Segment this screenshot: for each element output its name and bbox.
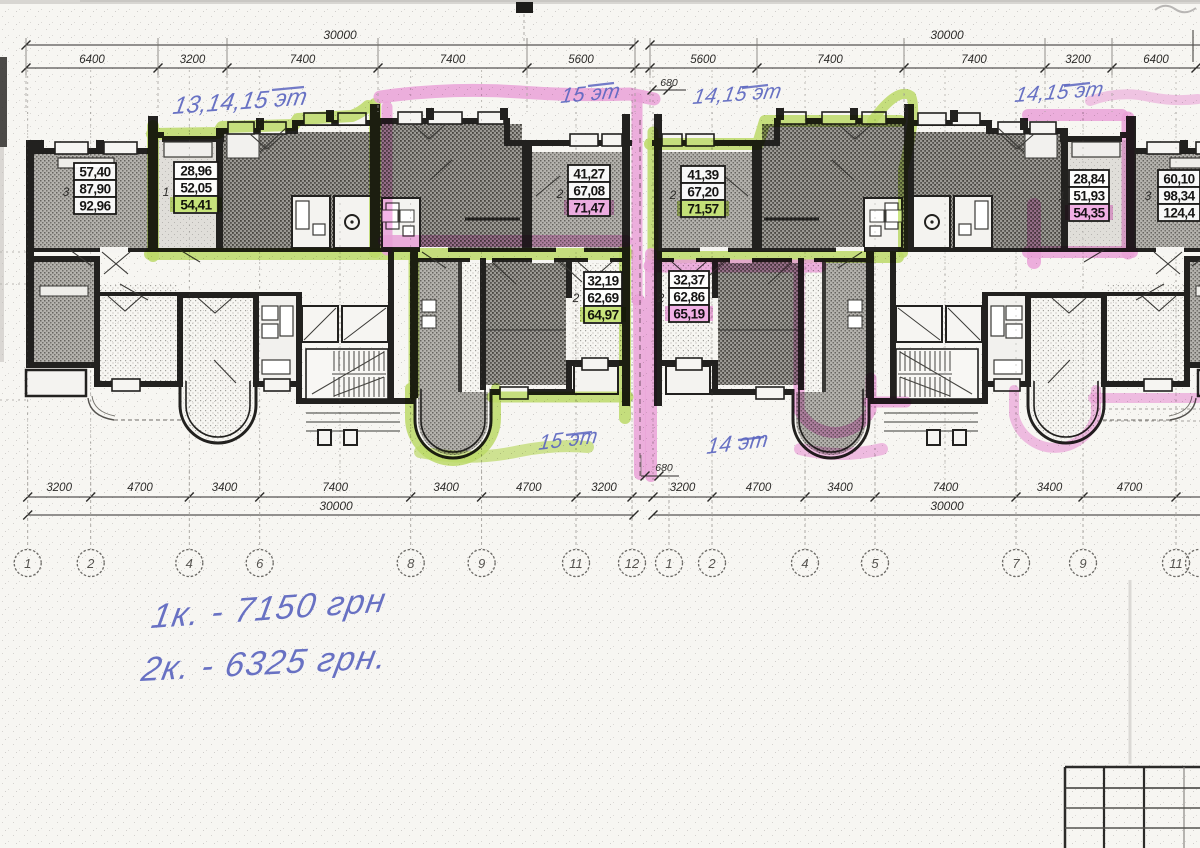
svg-text:98,34: 98,34	[1163, 189, 1195, 204]
svg-text:7400: 7400	[440, 54, 466, 66]
svg-text:87,90: 87,90	[79, 182, 110, 197]
svg-text:7400: 7400	[961, 54, 987, 66]
svg-text:32,19: 32,19	[587, 274, 618, 289]
svg-text:51,93: 51,93	[1073, 189, 1105, 204]
svg-text:6400: 6400	[79, 54, 105, 66]
svg-text:3200: 3200	[180, 54, 206, 66]
svg-text:3400: 3400	[1037, 482, 1063, 494]
svg-text:7400: 7400	[322, 482, 348, 494]
svg-text:7: 7	[1012, 556, 1020, 571]
svg-text:3200: 3200	[670, 482, 696, 494]
svg-text:9: 9	[1079, 556, 1086, 571]
svg-text:28,84: 28,84	[1073, 172, 1105, 187]
svg-text:3200: 3200	[591, 482, 617, 494]
svg-text:52,05: 52,05	[180, 181, 212, 196]
svg-text:5600: 5600	[568, 54, 594, 66]
svg-text:3400: 3400	[827, 482, 853, 494]
svg-text:41,39: 41,39	[687, 168, 718, 183]
svg-text:62,86: 62,86	[673, 290, 705, 305]
svg-text:5600: 5600	[690, 54, 716, 66]
svg-text:680: 680	[660, 77, 678, 89]
svg-text:5: 5	[871, 556, 879, 571]
svg-text:30000: 30000	[323, 28, 357, 42]
svg-text:4700: 4700	[127, 482, 153, 494]
svg-text:60,10: 60,10	[1163, 172, 1194, 187]
svg-text:1: 1	[24, 556, 31, 571]
svg-text:124,4: 124,4	[1163, 206, 1195, 221]
svg-text:2: 2	[572, 291, 580, 305]
svg-text:4700: 4700	[746, 482, 772, 494]
svg-text:30000: 30000	[319, 499, 353, 513]
svg-text:4: 4	[801, 556, 808, 571]
svg-text:2: 2	[669, 188, 677, 202]
svg-text:92,96: 92,96	[79, 199, 111, 214]
svg-text:2: 2	[556, 187, 564, 201]
svg-text:4: 4	[186, 556, 193, 571]
svg-text:3400: 3400	[212, 482, 238, 494]
svg-text:2: 2	[707, 556, 716, 571]
svg-text:2: 2	[657, 291, 665, 305]
svg-text:32,37: 32,37	[673, 273, 704, 288]
svg-text:7400: 7400	[290, 54, 316, 66]
svg-text:8: 8	[407, 556, 415, 571]
svg-text:4700: 4700	[1117, 482, 1143, 494]
svg-text:3200: 3200	[46, 482, 72, 494]
svg-text:6400: 6400	[1143, 54, 1169, 66]
svg-text:41,27: 41,27	[573, 167, 604, 182]
svg-text:1: 1	[665, 556, 672, 571]
svg-text:3400: 3400	[433, 482, 459, 494]
svg-text:11: 11	[569, 556, 583, 571]
svg-text:3: 3	[1145, 189, 1152, 203]
svg-text:12: 12	[625, 556, 640, 571]
svg-text:1: 1	[163, 185, 170, 199]
svg-text:1: 1	[1059, 189, 1066, 203]
svg-text:67,08: 67,08	[573, 184, 605, 199]
svg-text:680: 680	[655, 462, 673, 474]
svg-text:9: 9	[478, 556, 485, 571]
svg-text:6: 6	[256, 556, 264, 571]
svg-text:7400: 7400	[817, 54, 843, 66]
svg-text:62,69: 62,69	[587, 291, 618, 306]
svg-text:67,20: 67,20	[687, 185, 718, 200]
svg-text:2: 2	[86, 556, 95, 571]
svg-text:3200: 3200	[1065, 54, 1091, 66]
svg-text:7400: 7400	[933, 482, 959, 494]
svg-text:3: 3	[63, 185, 70, 199]
svg-text:30000: 30000	[930, 499, 964, 513]
svg-text:4700: 4700	[516, 482, 542, 494]
svg-text:30000: 30000	[930, 28, 964, 42]
svg-text:57,40: 57,40	[79, 165, 110, 180]
svg-text:28,96: 28,96	[180, 164, 212, 179]
svg-text:11: 11	[1169, 556, 1183, 571]
